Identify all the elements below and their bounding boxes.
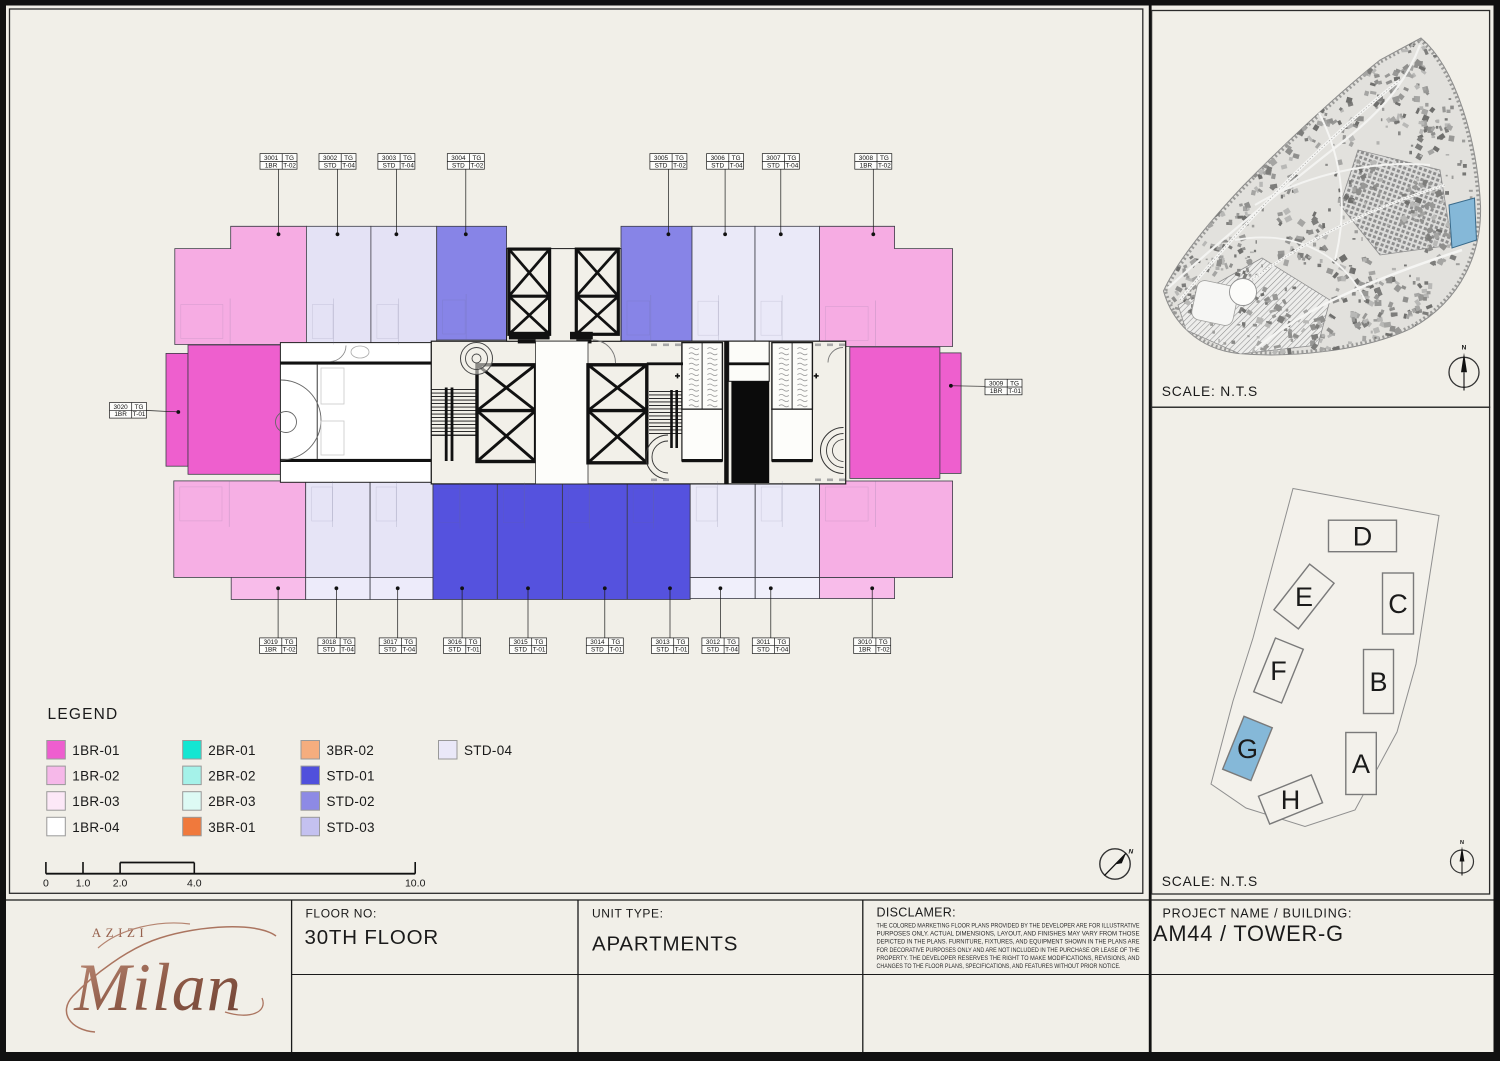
svg-text:STD: STD [707, 647, 720, 654]
svg-text:STD: STD [514, 647, 527, 654]
svg-text:T-02: T-02 [283, 647, 296, 654]
svg-text:FOR DECORATIVE PURPOSES ONLY A: FOR DECORATIVE PURPOSES ONLY AND ARE NOT… [877, 947, 1141, 954]
svg-text:TG: TG [727, 639, 736, 646]
svg-text:FLOOR NO:: FLOOR NO: [306, 907, 377, 921]
svg-text:1BR: 1BR [114, 411, 127, 418]
svg-text:3020: 3020 [113, 404, 128, 411]
svg-text:TG: TG [285, 639, 294, 646]
svg-text:DISCLAMER:: DISCLAMER: [877, 906, 956, 920]
svg-text:N: N [1462, 345, 1467, 352]
svg-text:STD-03: STD-03 [327, 820, 375, 835]
svg-text:3BR-01: 3BR-01 [208, 820, 256, 835]
svg-text:TG: TG [611, 639, 620, 646]
svg-text:DEPICTED IN THE PLANS. FURNITU: DEPICTED IN THE PLANS. FURNITURE, FIXTUR… [877, 939, 1141, 946]
svg-text:STD: STD [452, 162, 465, 169]
svg-text:STD: STD [591, 647, 604, 654]
svg-text:SCALE: N.T.S: SCALE: N.T.S [1162, 874, 1258, 889]
svg-text:Milan: Milan [73, 949, 241, 1025]
svg-text:AM44 / TOWER-G: AM44 / TOWER-G [1153, 921, 1344, 946]
svg-text:3004: 3004 [451, 155, 466, 162]
svg-text:TG: TG [344, 155, 353, 162]
svg-text:T-04: T-04 [786, 162, 799, 169]
svg-text:T-01: T-01 [133, 411, 146, 418]
svg-text:TG: TG [787, 155, 796, 162]
svg-text:3012: 3012 [706, 639, 721, 646]
svg-text:3002: 3002 [323, 155, 338, 162]
svg-text:PROPERTY. THE DEVELOPER RESERV: PROPERTY. THE DEVELOPER RESERVES THE RIG… [877, 955, 1140, 962]
svg-text:THE COLORED MARKETING FLOOR PL: THE COLORED MARKETING FLOOR PLANS PROVID… [877, 923, 1141, 930]
svg-text:3017: 3017 [383, 639, 398, 646]
svg-text:3BR-02: 3BR-02 [327, 743, 375, 758]
svg-text:APARTMENTS: APARTMENTS [592, 933, 738, 956]
svg-text:T-01: T-01 [1008, 388, 1021, 395]
svg-text:N: N [1460, 840, 1464, 846]
svg-text:3001: 3001 [264, 155, 279, 162]
svg-text:1BR: 1BR [265, 162, 278, 169]
svg-text:T-04: T-04 [342, 162, 355, 169]
svg-text:TG: TG [535, 639, 544, 646]
svg-text:N: N [1129, 849, 1134, 856]
svg-text:T-02: T-02 [471, 162, 484, 169]
svg-text:STD: STD [384, 647, 397, 654]
svg-text:1BR-01: 1BR-01 [72, 743, 120, 758]
svg-text:PROJECT NAME / BUILDING:: PROJECT NAME / BUILDING: [1163, 907, 1353, 921]
svg-text:F: F [1270, 656, 1287, 686]
svg-text:B: B [1369, 667, 1387, 697]
svg-text:T-04: T-04 [730, 162, 743, 169]
svg-text:TG: TG [732, 155, 741, 162]
svg-text:2BR-01: 2BR-01 [208, 743, 256, 758]
svg-text:3016: 3016 [448, 639, 463, 646]
svg-text:T-04: T-04 [401, 162, 414, 169]
svg-text:H: H [1281, 785, 1301, 815]
svg-text:T-04: T-04 [725, 647, 738, 654]
svg-text:3019: 3019 [264, 639, 279, 646]
svg-text:STD: STD [324, 162, 337, 169]
svg-text:2BR-03: 2BR-03 [208, 794, 256, 809]
svg-text:STD: STD [383, 162, 396, 169]
svg-text:1BR: 1BR [860, 162, 873, 169]
svg-text:1BR: 1BR [859, 647, 872, 654]
svg-text:E: E [1295, 582, 1313, 612]
svg-text:1.0: 1.0 [76, 878, 91, 890]
svg-text:STD: STD [655, 162, 668, 169]
svg-text:3011: 3011 [757, 639, 771, 646]
svg-text:4.0: 4.0 [187, 878, 202, 890]
svg-text:1BR-02: 1BR-02 [72, 769, 120, 784]
svg-text:TG: TG [675, 155, 684, 162]
svg-text:3007: 3007 [766, 155, 781, 162]
svg-text:3009: 3009 [989, 381, 1004, 388]
svg-text:TG: TG [472, 155, 481, 162]
svg-text:TG: TG [404, 639, 413, 646]
svg-text:3014: 3014 [590, 639, 605, 646]
svg-text:STD-02: STD-02 [327, 794, 375, 809]
svg-text:T-04: T-04 [776, 647, 789, 654]
svg-text:STD: STD [323, 647, 336, 654]
svg-text:TG: TG [343, 639, 352, 646]
svg-text:TG: TG [469, 639, 478, 646]
svg-text:3018: 3018 [322, 639, 337, 646]
svg-text:0: 0 [43, 878, 49, 890]
svg-text:2BR-02: 2BR-02 [208, 769, 256, 784]
svg-text:STD: STD [448, 647, 461, 654]
svg-text:LEGEND: LEGEND [48, 706, 119, 723]
svg-text:1BR: 1BR [264, 647, 277, 654]
svg-text:SCALE: N.T.S: SCALE: N.T.S [1162, 384, 1258, 399]
svg-text:TG: TG [879, 639, 888, 646]
svg-text:3003: 3003 [382, 155, 397, 162]
svg-text:T-01: T-01 [610, 647, 623, 654]
svg-text:T-01: T-01 [467, 647, 480, 654]
svg-text:TG: TG [777, 639, 786, 646]
svg-text:CHANGES TO THE FLOOR PLANS, SP: CHANGES TO THE FLOOR PLANS, SPECIFICATIO… [877, 963, 1121, 970]
svg-text:A: A [1352, 749, 1370, 779]
svg-text:STD: STD [757, 647, 770, 654]
svg-text:TG: TG [285, 155, 294, 162]
svg-text:T-04: T-04 [402, 647, 415, 654]
svg-text:3010: 3010 [858, 639, 873, 646]
svg-text:T-04: T-04 [341, 647, 354, 654]
svg-text:3005: 3005 [654, 155, 669, 162]
svg-text:3015: 3015 [513, 639, 528, 646]
svg-text:STD-04: STD-04 [464, 743, 513, 758]
svg-text:D: D [1353, 522, 1373, 552]
svg-text:3013: 3013 [655, 639, 670, 646]
svg-text:T-02: T-02 [877, 647, 890, 654]
svg-text:3008: 3008 [859, 155, 874, 162]
svg-text:10.0: 10.0 [405, 878, 426, 890]
svg-text:T-01: T-01 [533, 647, 546, 654]
svg-text:TG: TG [403, 155, 412, 162]
svg-text:TG: TG [1010, 381, 1019, 388]
svg-text:30TH FLOOR: 30TH FLOOR [305, 926, 439, 949]
svg-text:TG: TG [135, 404, 144, 411]
svg-text:1BR: 1BR [990, 388, 1003, 395]
svg-text:STD-01: STD-01 [327, 769, 375, 784]
svg-text:STD: STD [711, 162, 724, 169]
svg-text:1BR-03: 1BR-03 [72, 794, 120, 809]
svg-text:G: G [1237, 734, 1258, 764]
svg-text:T-02: T-02 [878, 162, 891, 169]
svg-text:C: C [1388, 589, 1408, 619]
svg-text:T-02: T-02 [673, 162, 686, 169]
svg-text:TG: TG [880, 155, 889, 162]
svg-text:UNIT TYPE:: UNIT TYPE: [592, 907, 664, 921]
svg-text:3006: 3006 [711, 155, 726, 162]
svg-text:T-02: T-02 [283, 162, 296, 169]
svg-text:T-01: T-01 [675, 647, 688, 654]
svg-text:STD: STD [656, 647, 669, 654]
svg-text:1BR-04: 1BR-04 [72, 820, 120, 835]
svg-text:PURPOSES ONLY. ACTUAL DIMENSIO: PURPOSES ONLY. ACTUAL DIMENSIONS, LAYOUT… [877, 931, 1141, 938]
svg-text:TG: TG [677, 639, 686, 646]
svg-text:2.0: 2.0 [113, 878, 128, 890]
svg-text:STD: STD [767, 162, 780, 169]
